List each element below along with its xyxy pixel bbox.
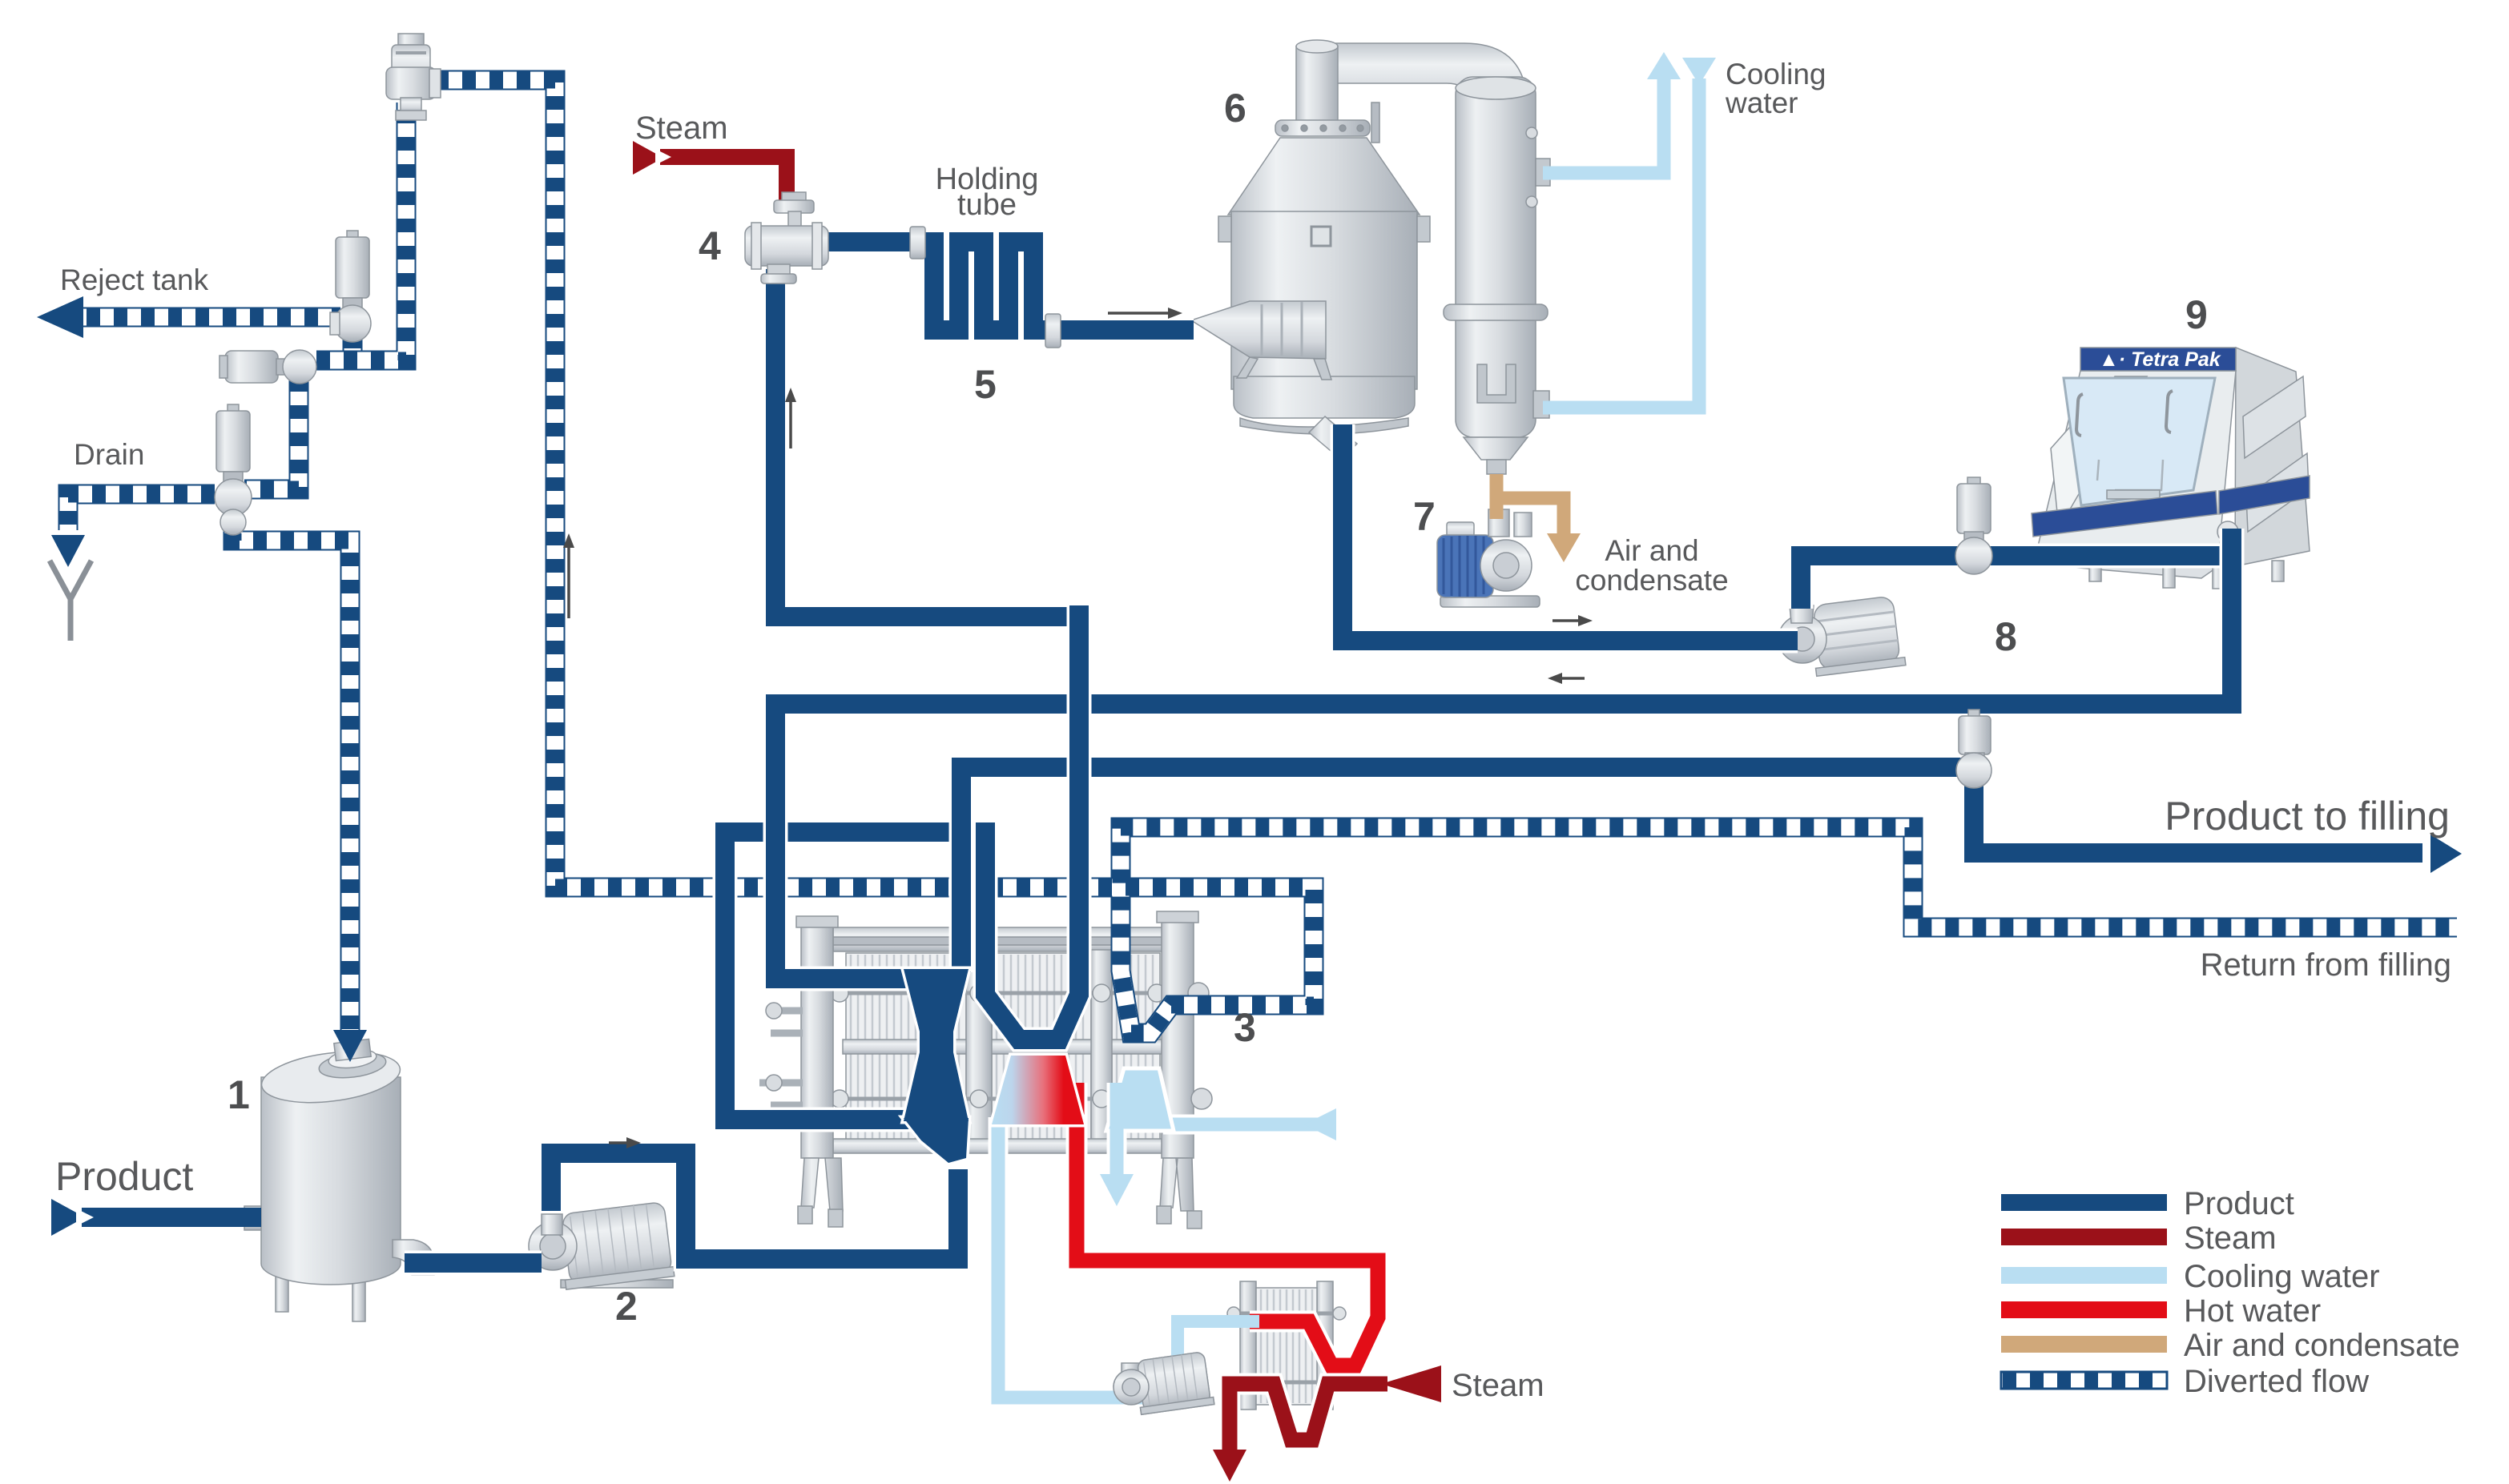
svg-text:Air and condensate: Air and condensate [2184,1328,2460,1363]
svg-text:Product: Product [2184,1186,2294,1221]
svg-text:Steam: Steam [2184,1221,2277,1256]
svg-text:8: 8 [1995,614,2017,659]
svg-text:7: 7 [1413,494,1436,539]
svg-text:Return from filling: Return from filling [2201,947,2451,983]
svg-text:2: 2 [615,1284,638,1329]
svg-text:5: 5 [974,362,997,407]
svg-text:▲· Tetra Pak: ▲· Tetra Pak [2099,348,2221,371]
svg-text:9: 9 [2185,292,2208,337]
svg-text:condensate: condensate [1575,564,1728,597]
svg-text:Product: Product [55,1154,193,1199]
svg-text:water: water [1725,86,1798,119]
svg-text:3: 3 [1234,1005,1256,1050]
svg-text:4: 4 [699,223,721,268]
svg-text:Air and: Air and [1605,534,1698,567]
svg-text:Steam: Steam [635,111,728,146]
svg-text:6: 6 [1224,86,1246,131]
svg-text:tube: tube [957,188,1017,222]
svg-text:Cooling: Cooling [1726,58,1826,90]
svg-text:Diverted flow: Diverted flow [2184,1364,2369,1399]
svg-text:Product to filling: Product to filling [2165,794,2450,839]
svg-text:Steam: Steam [1452,1368,1544,1403]
svg-text:Hot water: Hot water [2184,1293,2321,1329]
svg-text:Cooling water: Cooling water [2184,1259,2380,1294]
svg-text:1: 1 [228,1072,250,1117]
svg-text:Reject tank: Reject tank [60,263,209,296]
svg-text:Drain: Drain [74,438,144,471]
